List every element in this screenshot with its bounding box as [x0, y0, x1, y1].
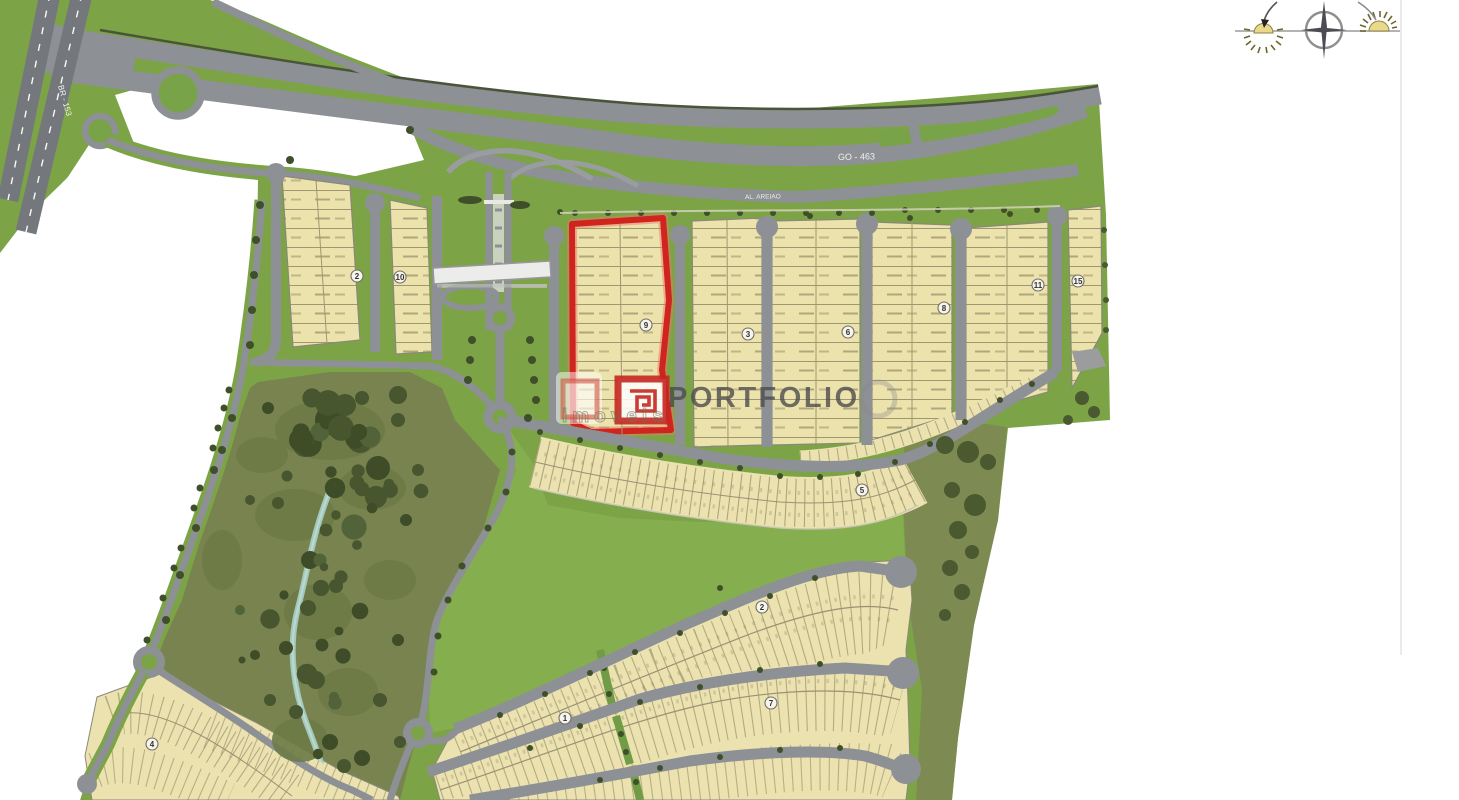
svg-text:GO - 463: GO - 463 — [838, 151, 875, 162]
svg-text:4: 4 — [150, 740, 155, 749]
svg-text:AL. AREIAO: AL. AREIAO — [745, 193, 781, 201]
svg-text:5: 5 — [860, 486, 865, 495]
svg-text:6: 6 — [846, 328, 851, 337]
svg-text:PORTFOLIO: PORTFOLIO — [668, 382, 860, 414]
svg-text:11: 11 — [1034, 281, 1043, 290]
svg-text:9: 9 — [644, 321, 649, 330]
svg-text:2: 2 — [760, 603, 765, 612]
svg-text:2: 2 — [355, 272, 360, 281]
svg-text:3: 3 — [746, 330, 751, 339]
svg-text:10: 10 — [396, 273, 405, 282]
svg-text:15: 15 — [1074, 277, 1083, 286]
svg-text:8: 8 — [942, 304, 947, 313]
svg-text:7: 7 — [769, 699, 774, 708]
svg-text:imoveis: imoveis — [562, 406, 668, 427]
svg-text:1: 1 — [563, 714, 568, 723]
